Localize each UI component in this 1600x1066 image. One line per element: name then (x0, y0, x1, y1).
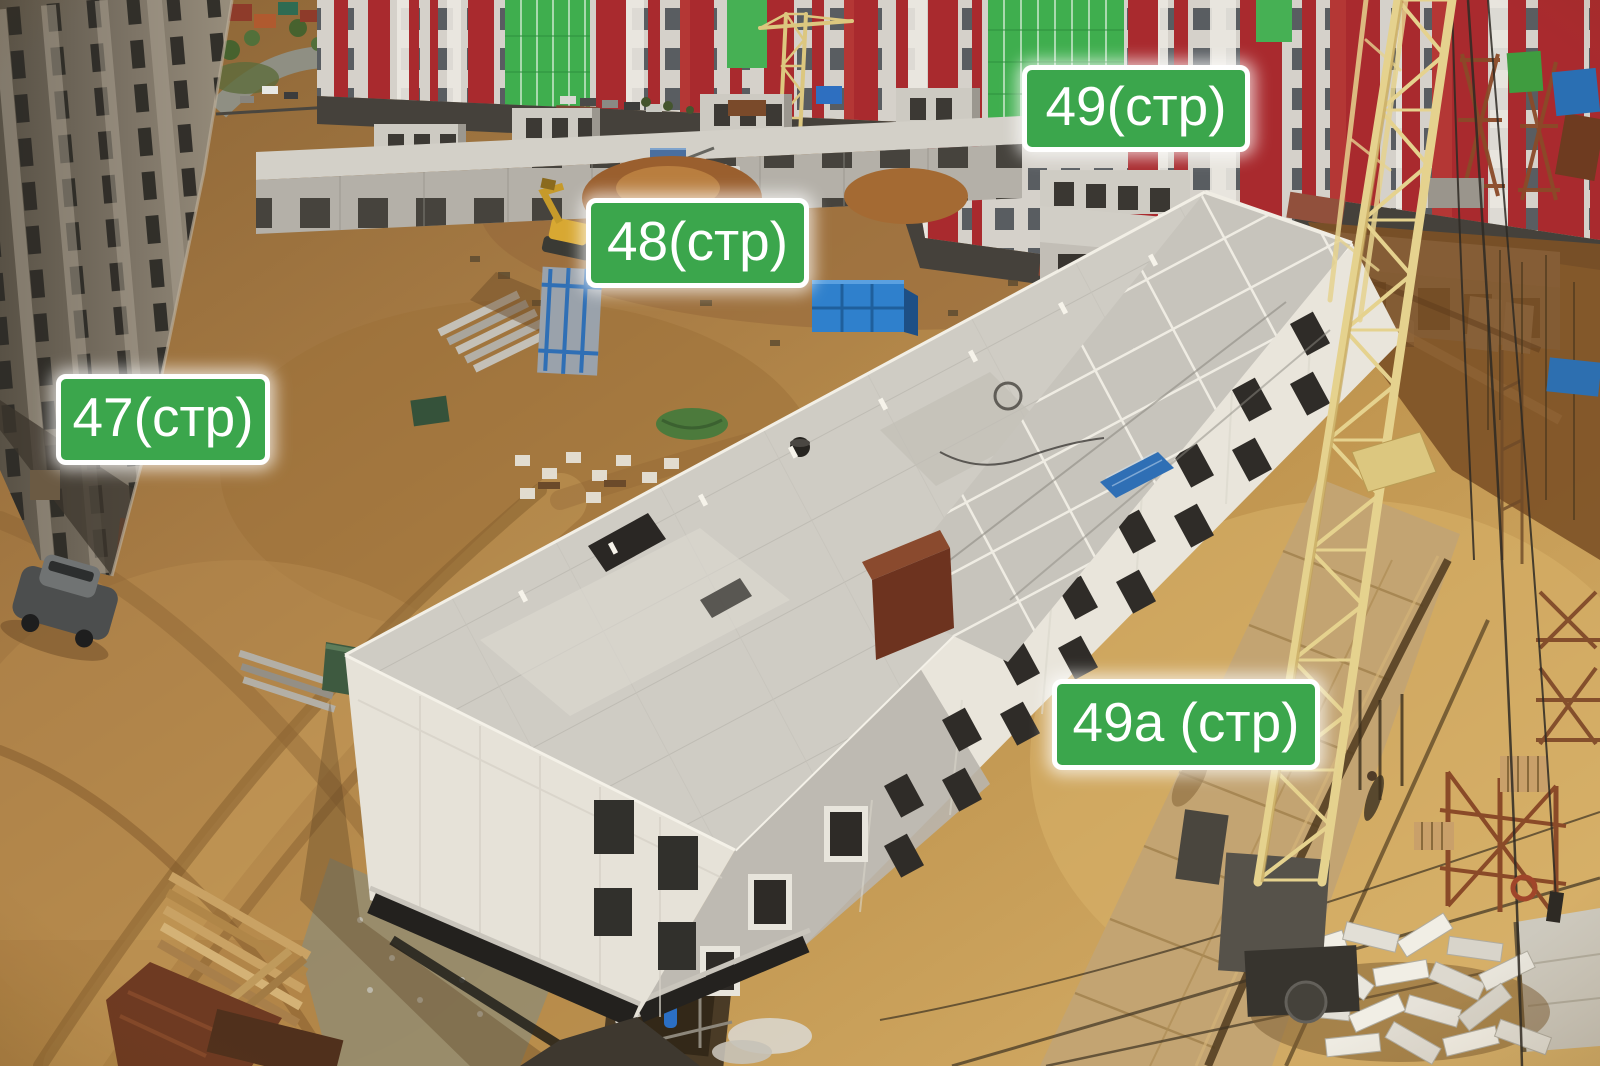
site-label-49-text: 49(стр) (1045, 79, 1226, 134)
site-label-49: 49(стр) (1022, 65, 1250, 152)
site-photo-art (0, 0, 1600, 1066)
site-label-48-text: 48(стр) (607, 214, 788, 269)
site-label-49a-text: 49а (стр) (1073, 695, 1300, 750)
construction-site-photo: 47(стр) 48(стр) 49(стр) 49а (стр) (0, 0, 1600, 1066)
site-label-48: 48(стр) (586, 198, 809, 288)
site-label-47-text: 47(стр) (72, 390, 253, 445)
site-label-47: 47(стр) (56, 374, 270, 465)
site-label-49a: 49а (стр) (1052, 679, 1320, 770)
vignette (0, 0, 1600, 1066)
